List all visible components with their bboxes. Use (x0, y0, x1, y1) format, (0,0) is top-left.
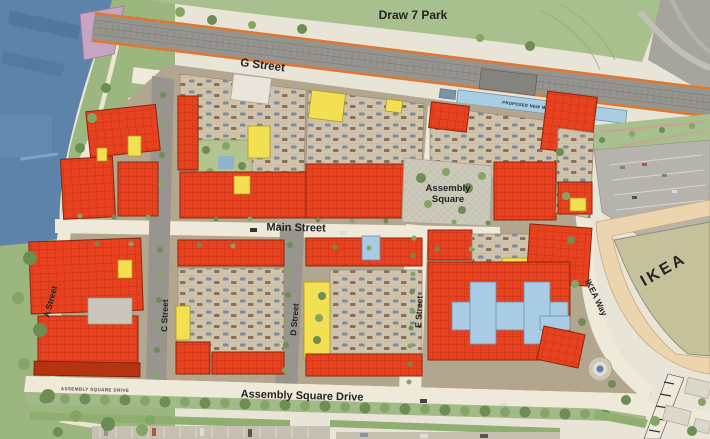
assembly-square-plaza: Assembly Square (402, 158, 492, 226)
assembly-square-label-line2: Square (432, 194, 464, 205)
station-shelter (439, 89, 456, 100)
block-mid-cd (176, 240, 284, 374)
fountain-plaza (588, 357, 612, 381)
draw-7-park-label: Draw 7 Park (379, 8, 448, 22)
e-street-label: E Street (413, 295, 425, 328)
master-plan-svg: Draw 7 Park PROPOSED NEW MBTA PLATFORM (0, 0, 710, 439)
main-street-label: Main Street (266, 221, 326, 234)
block-mid-de (304, 236, 422, 376)
site-plan-map: Draw 7 Park PROPOSED NEW MBTA PLATFORM (0, 0, 710, 439)
block-mid-e (428, 224, 592, 368)
assembly-square-label-line1: Assembly (426, 183, 472, 194)
c-street-label: C Street (159, 299, 170, 332)
block-upper-cd (178, 74, 306, 218)
